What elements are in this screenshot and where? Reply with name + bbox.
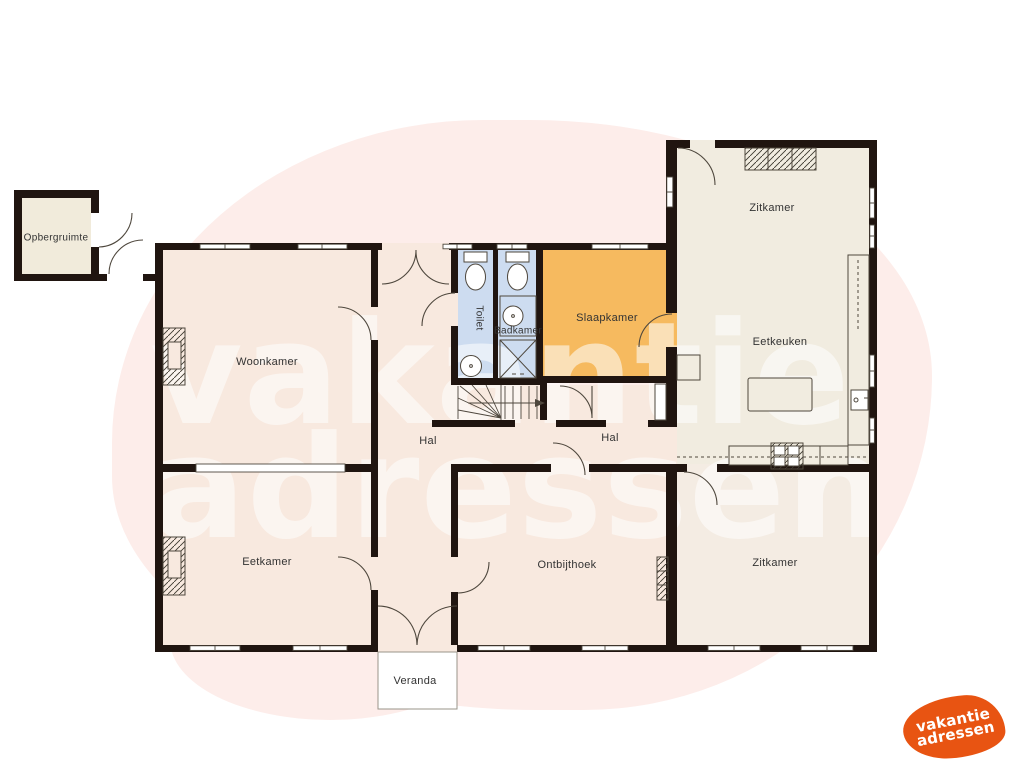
stairs (458, 385, 545, 420)
logo-text: vakantie adressen (913, 705, 996, 748)
window (870, 225, 875, 248)
room-label-slaapkamer: Slaapkamer (576, 312, 638, 324)
kitchen-cabinet (677, 355, 700, 380)
floorplan-canvas: vakantie adressen (0, 0, 1024, 768)
fireplace-ontbijthoek (657, 557, 668, 600)
door-toilet (422, 293, 455, 326)
room-label-woonkamer: Woonkamer (236, 356, 298, 368)
hal-closet (655, 384, 666, 420)
room-label-badkamer: Badkamer (494, 326, 542, 337)
fixtures (163, 148, 869, 709)
room-label-hal-links: Hal (419, 435, 436, 447)
door-zitkamer-boven (678, 148, 715, 185)
wide-opening (196, 464, 345, 472)
room-label-toilet: Toilet (474, 305, 485, 330)
kitchen-counter-right (848, 255, 869, 445)
vakantieadressen-logo: vakantie adressen (903, 696, 1013, 764)
badkamer-wc (506, 252, 529, 290)
door-eetkamer (338, 557, 371, 590)
room-label-hal-rechts: Hal (601, 432, 618, 444)
door-hal-slaapkamer (560, 386, 592, 418)
shower (500, 340, 536, 378)
toilet-wc (464, 252, 487, 290)
kitchen-table (748, 378, 812, 411)
room-label-ontbijthoek: Ontbijthoek (538, 559, 597, 571)
doors (99, 148, 717, 645)
room-label-zitkamer-boven: Zitkamer (749, 202, 794, 214)
fireplace-woonkamer (163, 328, 185, 385)
door-entrance (109, 240, 143, 274)
kitchen-counter-bottom (677, 443, 869, 469)
room-label-eetkeuken: Eetkeuken (753, 336, 808, 348)
door-opbergruimte (99, 213, 132, 247)
room-label-zitkamer-beneden: Zitkamer (752, 557, 797, 569)
door-hal-ontbijthoek (553, 443, 585, 475)
fireplace-zitkamer-boven (745, 148, 816, 170)
door-woonkamer (338, 307, 371, 340)
double-door-veranda (378, 606, 457, 645)
door-zitkamer-beneden (684, 472, 717, 505)
plan-lines-layer (0, 0, 1024, 768)
room-label-eetkamer: Eetkamer (242, 556, 291, 568)
window-ticks (215, 192, 875, 651)
room-label-veranda: Veranda (393, 675, 436, 687)
door-slaapkamer (639, 314, 672, 347)
fireplace-eetkamer (163, 537, 185, 595)
door-ontbijthoek (458, 562, 489, 593)
logo-blob: vakantie adressen (901, 693, 1007, 762)
room-label-opbergruimte: Opbergruimte (24, 233, 89, 244)
window (870, 418, 875, 443)
toilet-sink (461, 356, 482, 377)
window (298, 244, 347, 249)
window (443, 244, 472, 249)
double-door-hal-north (382, 250, 449, 284)
